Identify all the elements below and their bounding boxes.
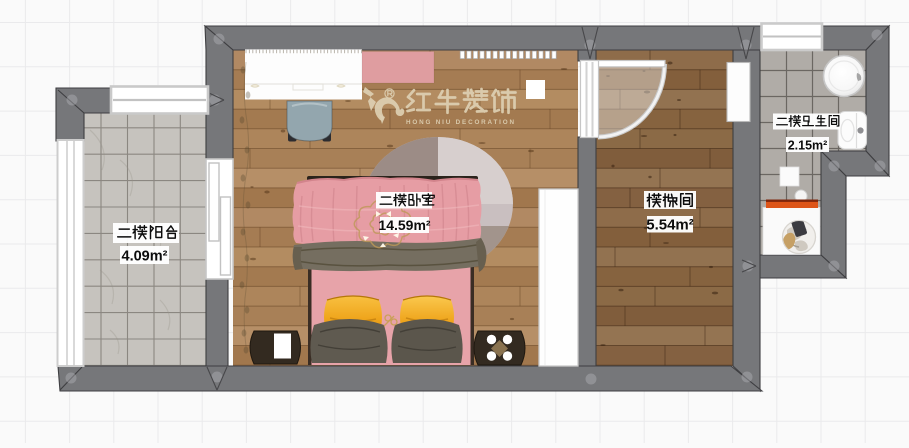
svg-text:14.59m²: 14.59m² <box>378 217 430 233</box>
svg-text:5.54m²: 5.54m² <box>646 217 694 234</box>
svg-text:4.09m²: 4.09m² <box>122 249 168 265</box>
svg-text:HONG NIU DECORATION: HONG NIU DECORATION <box>406 119 514 126</box>
svg-text:2.15m²: 2.15m² <box>788 139 828 153</box>
